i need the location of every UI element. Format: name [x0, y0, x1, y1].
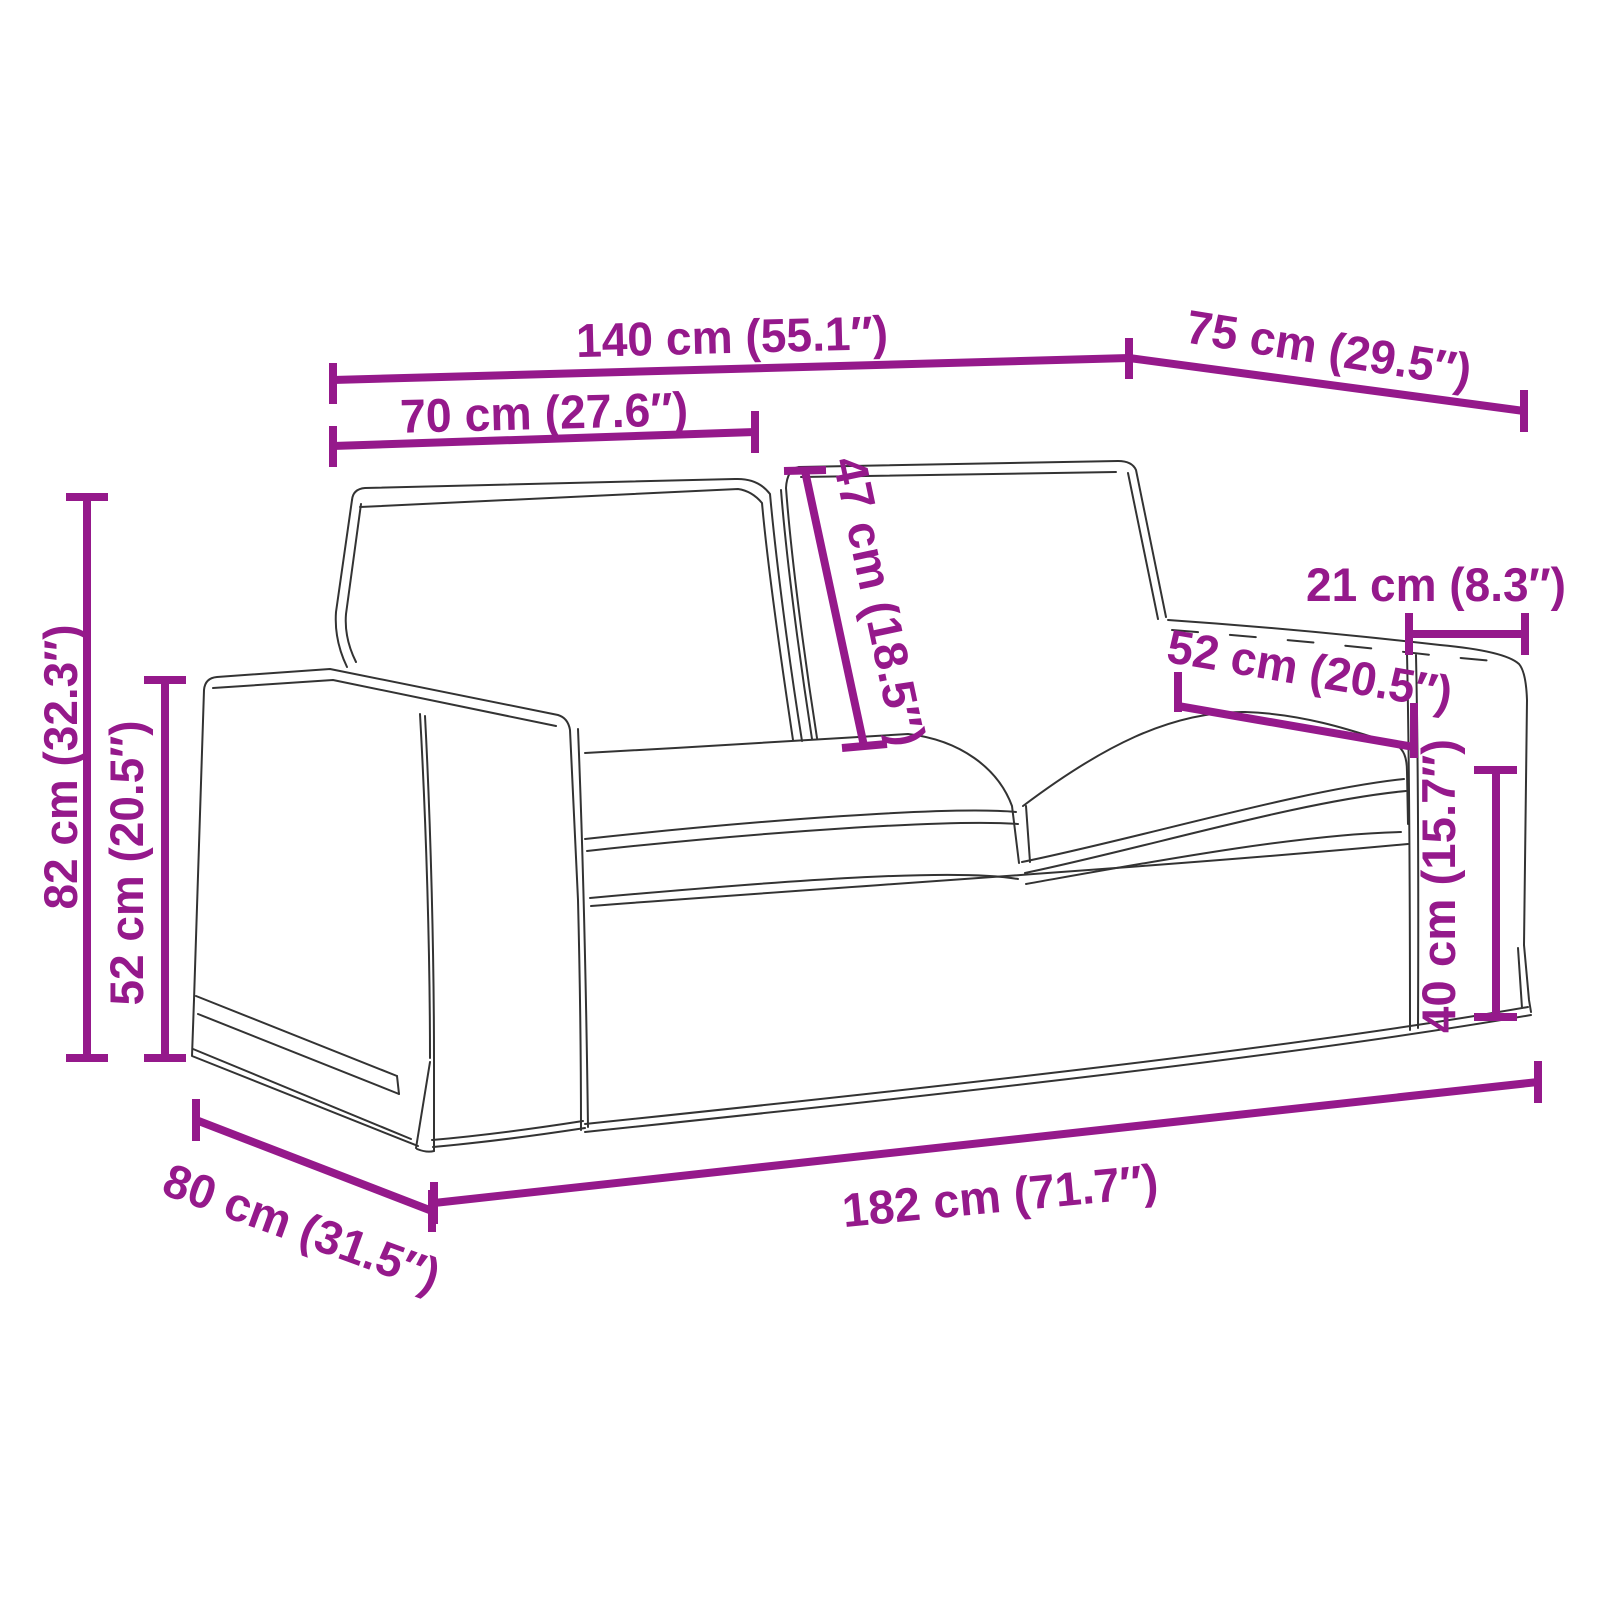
svg-text:40 cm (15.7″): 40 cm (15.7″) [1413, 739, 1466, 1033]
svg-text:52 cm (20.5″): 52 cm (20.5″) [101, 721, 154, 1006]
svg-text:140 cm (55.1″): 140 cm (55.1″) [575, 307, 888, 368]
svg-text:82 cm (32.3″): 82 cm (32.3″) [35, 625, 88, 910]
svg-text:70 cm (27.6″): 70 cm (27.6″) [399, 383, 688, 444]
svg-text:21 cm (8.3″): 21 cm (8.3″) [1306, 559, 1566, 612]
